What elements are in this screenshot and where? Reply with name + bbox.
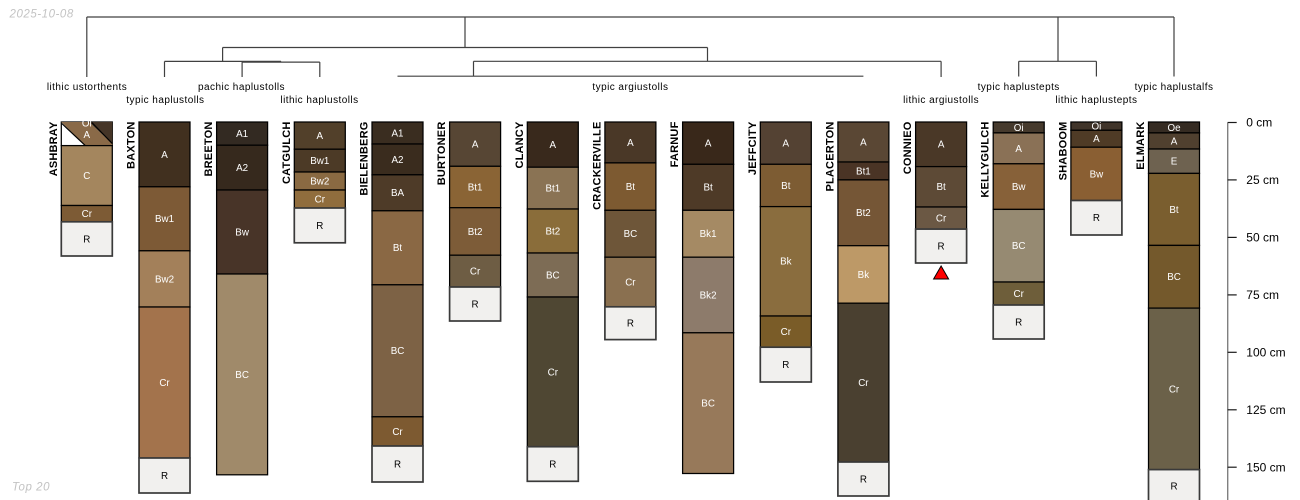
svg-text:Top 20: Top 20 (12, 481, 50, 493)
svg-text:A1: A1 (392, 128, 404, 139)
svg-text:Bt: Bt (1169, 205, 1179, 216)
svg-text:CONNIEO: CONNIEO (902, 121, 914, 174)
svg-text:SHABOOM: SHABOOM (1057, 122, 1069, 181)
svg-text:BC: BC (701, 399, 715, 410)
svg-text:Bt: Bt (936, 182, 946, 193)
svg-text:Bk1: Bk1 (700, 229, 717, 240)
svg-text:R: R (1170, 482, 1177, 493)
svg-text:A: A (783, 139, 790, 150)
svg-text:Bk2: Bk2 (700, 290, 717, 301)
svg-text:Cr: Cr (159, 378, 170, 389)
svg-text:Cr: Cr (470, 267, 481, 278)
svg-text:lithic haplustolls: lithic haplustolls (280, 95, 358, 106)
svg-text:50 cm: 50 cm (1246, 231, 1279, 245)
svg-text:Cr: Cr (858, 378, 869, 389)
svg-text:Bt1: Bt1 (545, 184, 560, 195)
svg-text:BC: BC (1012, 241, 1026, 252)
svg-text:BC: BC (624, 229, 638, 240)
svg-text:lithic ustorthents: lithic ustorthents (47, 82, 127, 93)
svg-text:KELLYGULCH: KELLYGULCH (980, 121, 992, 197)
svg-text:Bt1: Bt1 (468, 182, 483, 193)
svg-text:A: A (1171, 136, 1178, 147)
svg-text:CRACKERVILLE: CRACKERVILLE (591, 122, 603, 210)
svg-text:Cr: Cr (1014, 289, 1025, 300)
svg-text:Cr: Cr (936, 213, 947, 224)
svg-text:A: A (705, 139, 712, 150)
svg-text:R: R (316, 221, 323, 232)
svg-text:BURTONER: BURTONER (436, 122, 448, 186)
svg-text:R: R (549, 459, 556, 470)
svg-text:typic haplustolls: typic haplustolls (126, 95, 204, 106)
svg-text:A: A (550, 140, 557, 151)
svg-text:Oe: Oe (1167, 123, 1181, 134)
svg-text:R: R (394, 459, 401, 470)
svg-text:R: R (161, 471, 168, 482)
svg-text:BC: BC (235, 370, 249, 381)
svg-text:Bt: Bt (626, 182, 636, 193)
svg-text:ELMARK: ELMARK (1135, 122, 1147, 170)
svg-text:A: A (472, 140, 479, 151)
svg-text:R: R (860, 474, 867, 485)
svg-text:75 cm: 75 cm (1246, 288, 1279, 302)
svg-text:CATGULCH: CATGULCH (281, 122, 293, 185)
svg-text:Bt1: Bt1 (856, 166, 871, 177)
svg-text:100 cm: 100 cm (1246, 346, 1285, 360)
svg-text:R: R (472, 299, 479, 310)
svg-text:BAXTON: BAXTON (126, 122, 138, 169)
svg-text:Bw: Bw (1012, 182, 1027, 193)
svg-text:A: A (1093, 134, 1100, 145)
svg-text:typic argiustolls: typic argiustolls (592, 82, 668, 93)
svg-text:Bk: Bk (858, 270, 870, 281)
svg-text:Cr: Cr (82, 209, 93, 220)
svg-text:A: A (1015, 144, 1022, 155)
svg-text:BC: BC (391, 346, 405, 357)
svg-text:Bw: Bw (1090, 169, 1105, 180)
svg-text:Bt2: Bt2 (856, 208, 871, 219)
svg-text:PLACERTON: PLACERTON (824, 122, 836, 192)
svg-text:BC: BC (1167, 272, 1181, 283)
svg-text:R: R (782, 360, 789, 371)
svg-text:125 cm: 125 cm (1246, 403, 1285, 417)
svg-text:0 cm: 0 cm (1246, 116, 1272, 130)
svg-text:Cr: Cr (1169, 384, 1180, 395)
svg-text:ASHBRAY: ASHBRAY (48, 121, 60, 176)
svg-text:R: R (1015, 317, 1022, 328)
svg-text:FARNUF: FARNUF (669, 121, 681, 167)
svg-text:Cr: Cr (392, 427, 403, 438)
svg-text:Bw1: Bw1 (310, 156, 329, 167)
svg-text:JEFFCITY: JEFFCITY (747, 121, 759, 175)
svg-text:A: A (860, 137, 867, 148)
svg-text:A2: A2 (236, 163, 248, 174)
svg-text:Cr: Cr (625, 277, 636, 288)
svg-text:Cr: Cr (781, 327, 792, 338)
svg-text:lithic argiustolls: lithic argiustolls (903, 95, 979, 106)
svg-text:Bt2: Bt2 (468, 227, 483, 238)
svg-text:pachic haplustolls: pachic haplustolls (198, 82, 285, 93)
svg-text:25 cm: 25 cm (1246, 173, 1279, 187)
svg-text:A1: A1 (236, 129, 248, 140)
svg-text:Bw: Bw (235, 227, 250, 238)
svg-text:Cr: Cr (548, 367, 559, 378)
svg-text:C: C (83, 171, 90, 182)
svg-text:A: A (161, 150, 168, 161)
svg-text:Oi: Oi (1014, 123, 1024, 134)
svg-text:R: R (938, 241, 945, 252)
svg-text:A2: A2 (392, 155, 404, 166)
svg-text:A: A (84, 130, 91, 141)
svg-text:lithic haplustepts: lithic haplustepts (1055, 95, 1137, 106)
svg-text:A: A (317, 131, 324, 142)
svg-text:typic haplustepts: typic haplustepts (978, 82, 1060, 93)
svg-text:150 cm: 150 cm (1246, 460, 1285, 474)
svg-text:typic haplustalfs: typic haplustalfs (1135, 82, 1214, 93)
svg-text:R: R (83, 234, 90, 245)
svg-text:2025-10-08: 2025-10-08 (9, 9, 74, 21)
svg-text:A: A (938, 140, 945, 151)
svg-text:Bt: Bt (781, 181, 791, 192)
svg-text:BIELENBERG: BIELENBERG (359, 122, 371, 196)
svg-text:Bt: Bt (703, 183, 713, 194)
svg-text:BC: BC (546, 270, 560, 281)
svg-text:Bw1: Bw1 (155, 214, 174, 225)
svg-text:CLANCY: CLANCY (514, 121, 526, 168)
svg-text:Oi: Oi (82, 119, 92, 130)
svg-text:Cr: Cr (315, 194, 326, 205)
svg-text:A: A (627, 138, 634, 149)
svg-text:Bt: Bt (393, 243, 403, 254)
svg-text:Bk: Bk (780, 257, 792, 268)
svg-text:BREETON: BREETON (203, 122, 215, 177)
svg-text:R: R (1093, 213, 1100, 224)
svg-text:Bw2: Bw2 (155, 274, 174, 285)
svg-text:Bw2: Bw2 (310, 176, 329, 187)
svg-text:E: E (1171, 157, 1178, 168)
svg-text:Bt2: Bt2 (545, 226, 560, 237)
svg-text:BA: BA (391, 188, 405, 199)
svg-text:R: R (627, 319, 634, 330)
